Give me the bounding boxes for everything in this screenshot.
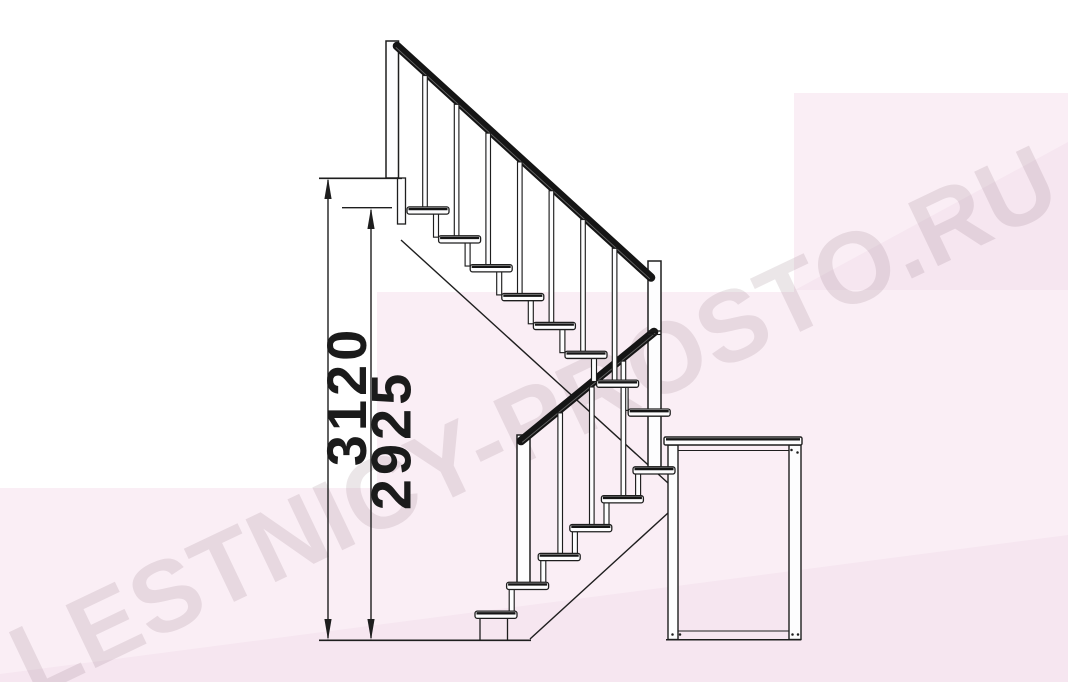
step-support — [465, 242, 470, 266]
baluster — [549, 191, 554, 324]
step-support — [592, 358, 597, 382]
step-support — [497, 271, 502, 295]
screw-dot — [671, 633, 674, 636]
tread — [565, 351, 607, 358]
tread — [628, 409, 670, 416]
tread — [633, 467, 675, 474]
screw-dot — [797, 633, 800, 636]
tread — [601, 496, 643, 503]
step-support — [636, 473, 641, 497]
step-support — [434, 214, 439, 238]
step-support — [604, 502, 609, 526]
landing-post — [648, 261, 661, 467]
lower-newel-post — [517, 435, 530, 583]
baluster — [590, 387, 595, 526]
baluster — [454, 104, 459, 237]
box-right-leg — [789, 445, 801, 640]
step-support — [572, 531, 577, 555]
step-support — [541, 560, 546, 584]
tread — [439, 236, 481, 243]
baluster — [581, 220, 586, 353]
baluster — [518, 162, 523, 295]
baluster — [612, 248, 617, 381]
screw-dot — [679, 633, 682, 636]
baluster — [423, 76, 428, 209]
staircase-diagram: LESTNICY-PROSTO.RU 3120 — [0, 0, 1068, 682]
screw-dot — [796, 451, 799, 454]
step-support — [509, 589, 514, 613]
tread — [502, 294, 544, 301]
tread — [475, 611, 517, 618]
tread — [470, 265, 512, 272]
screw-dot — [791, 633, 794, 636]
screw-dot — [790, 449, 793, 452]
dimension-value: 2925 — [360, 370, 423, 511]
step-support — [528, 300, 533, 324]
tread — [538, 553, 580, 560]
top-newel-post — [386, 41, 399, 178]
baluster — [558, 413, 563, 555]
tread — [597, 380, 639, 387]
tread — [507, 582, 549, 589]
tread — [407, 207, 449, 214]
step-support — [560, 329, 565, 353]
baluster — [486, 133, 491, 266]
tread — [570, 525, 612, 532]
floor-mount-bracket — [398, 178, 406, 224]
tread — [533, 322, 575, 329]
